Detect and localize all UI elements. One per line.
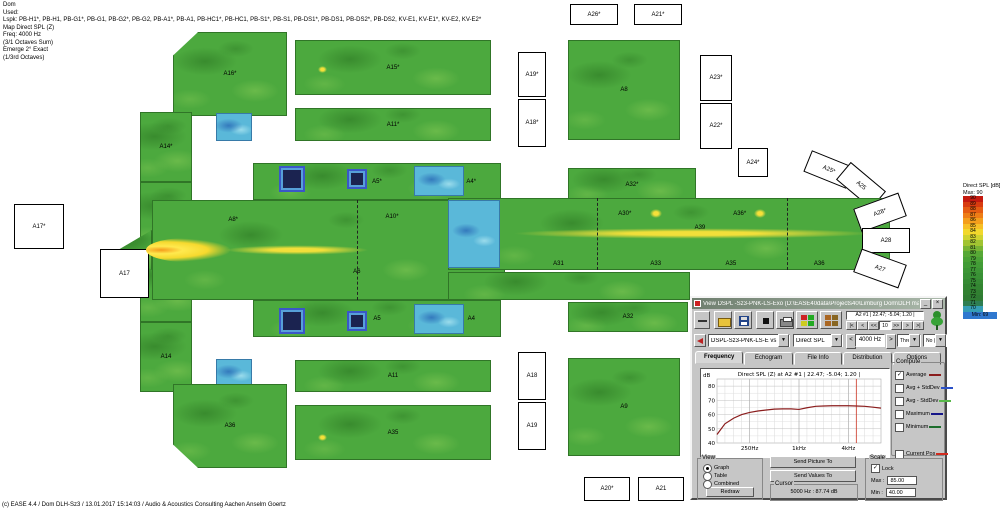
nav-button[interactable]: > xyxy=(902,321,913,330)
area-label: A22* xyxy=(709,123,722,129)
audience-area-zone[interactable] xyxy=(347,169,367,189)
window-titlebar[interactable]: View DSPL -Sz3-PNK-LS-Exo (D:\EASE40data… xyxy=(692,298,945,309)
redraw-button[interactable]: Redraw xyxy=(706,487,754,497)
map-info-line: (3/1 Octaves Sum) xyxy=(3,40,481,48)
audience-area-outline[interactable]: A22* xyxy=(700,103,732,149)
area-label: A19* xyxy=(525,72,538,78)
area-label: A5 xyxy=(373,316,380,322)
probe-position-field[interactable]: A2 #1 | 22.47; -5.04; 1.20 | xyxy=(846,311,924,320)
audience-area-zone[interactable]: A8 xyxy=(568,40,680,140)
printer-icon xyxy=(780,319,793,327)
series-color-swatch xyxy=(941,387,953,389)
speaker-button[interactable] xyxy=(694,334,706,347)
max-field[interactable]: 85.00 xyxy=(887,476,917,485)
view-dspl-window: View DSPL -Sz3-PNK-LS-Exo (D:\EASE40data… xyxy=(690,296,947,500)
compute-option-label: Maximum xyxy=(906,411,930,417)
area-label: A26* xyxy=(587,12,600,18)
nav-button[interactable]: < xyxy=(857,321,868,330)
compute-option-label: Current Pos xyxy=(906,451,935,457)
audience-area-outline[interactable]: A21* xyxy=(634,4,682,25)
selector-toolbar: DSPL-Sz3-PNK-LS-E vs DSPL-Sz▼ Direct SPL… xyxy=(692,333,945,350)
loudspeaker-grid-icon xyxy=(801,315,814,326)
area-label: A23* xyxy=(709,75,722,81)
area-label: A25 xyxy=(855,180,867,191)
map-info-line: Dom xyxy=(3,2,481,10)
map-info-header: DomUsed:Lspk: PB-H1*, PB-H1, PB-G1*, PB-… xyxy=(3,2,481,62)
audience-area-outline[interactable]: A19* xyxy=(518,52,546,97)
print-button[interactable] xyxy=(776,311,794,329)
area-label: A36* xyxy=(733,211,746,217)
svg-text:50: 50 xyxy=(708,427,715,433)
nav-button[interactable]: |< xyxy=(846,321,857,330)
stop-icon xyxy=(763,318,769,324)
map-info-line: Freq: 4000 Hz xyxy=(3,32,481,40)
max-label: Max : xyxy=(871,478,884,484)
loudspeaker-set-b-button[interactable] xyxy=(820,311,842,329)
series-color-swatch xyxy=(929,426,941,428)
series-color-swatch xyxy=(931,413,943,415)
area-label: A25* xyxy=(822,164,836,174)
chevron-down-icon[interactable]: ▼ xyxy=(831,334,842,347)
svg-text:dB: dB xyxy=(703,373,710,379)
spl-hotspot xyxy=(754,209,766,218)
audience-area-outline[interactable]: A24* xyxy=(738,148,768,177)
send-picture-to-button[interactable]: Send Picture To xyxy=(770,456,856,468)
ease-mapping-screen: DomUsed:Lspk: PB-H1*, PB-H1, PB-G1*, PB-… xyxy=(0,0,1000,511)
save-floppy-icon xyxy=(739,316,749,326)
area-label: A17* xyxy=(32,224,45,230)
audience-area-zone[interactable] xyxy=(279,308,305,334)
audience-area-zone[interactable]: A11* xyxy=(295,108,491,141)
area-label: A21 xyxy=(656,486,667,492)
area-label: A14* xyxy=(159,144,172,150)
spl-hotspot xyxy=(318,66,327,73)
audience-area-zone[interactable]: A32* xyxy=(568,168,696,201)
stop-button[interactable] xyxy=(756,311,774,329)
compute-option-label: Avg - StdDev xyxy=(906,398,938,404)
audience-area-outline[interactable]: A17 xyxy=(100,249,149,298)
freq-next-button[interactable]: > xyxy=(886,334,896,349)
spl-hotspot xyxy=(505,228,880,239)
cursor-group: Cursor 5000 Hz : 87.74 dB xyxy=(770,484,858,501)
area-label: A16* xyxy=(223,71,236,77)
tab-echogram[interactable]: Echogram xyxy=(744,352,792,365)
area-label: A11* xyxy=(387,122,400,128)
compute-option: ✓Average xyxy=(895,371,941,379)
cursor-readout: 5000 Hz : 87.74 dB xyxy=(771,489,857,495)
audience-area-outline[interactable]: A17* xyxy=(14,204,64,249)
loudspeaker-set-a-button[interactable] xyxy=(796,311,818,329)
checkbox[interactable] xyxy=(895,397,904,406)
bandwidth-combo[interactable]: Three Octave▼ xyxy=(897,334,921,347)
map-info-line: Lspk: PB-H1*, PB-H1, PB-G1*, PB-G1, PB-G… xyxy=(3,17,481,25)
weighting-combo-value: No (Z) Weight xyxy=(924,338,935,344)
spl-color-legend: Direct SPL [dB] Max: 90 9089888786858483… xyxy=(963,183,1000,319)
checkbox[interactable] xyxy=(895,384,904,393)
section-divider-line xyxy=(597,198,598,270)
probe-nav-buttons: |<<<<10>>>>| xyxy=(846,321,924,330)
area-label: A32 xyxy=(623,314,634,320)
audience-area-zone[interactable]: A14 xyxy=(140,322,192,392)
nav-button[interactable]: >> xyxy=(891,321,902,330)
svg-text:80: 80 xyxy=(708,384,715,390)
compute-option: Avg + StdDev xyxy=(895,384,941,392)
area-label: A17 xyxy=(119,271,130,277)
hide-icon xyxy=(698,320,707,322)
radio-combined[interactable] xyxy=(703,480,712,489)
svg-text:40: 40 xyxy=(708,441,715,447)
audience-area-outline[interactable]: A21 xyxy=(638,477,684,501)
frequency-response-chart[interactable]: 8070605040250Hz1kHz4kHzdBDirect SPL (Z) … xyxy=(701,369,887,455)
area-label: A36 xyxy=(225,423,236,429)
chevron-down-icon[interactable]: ▼ xyxy=(778,334,789,347)
spl-hotspot xyxy=(318,434,327,441)
audience-area-zone[interactable] xyxy=(347,311,367,331)
compute-option-label: Average xyxy=(906,372,928,378)
area-label: A32* xyxy=(625,182,638,188)
legend-title: Direct SPL [dB] xyxy=(963,183,1000,190)
audience-area-outline[interactable]: A27 xyxy=(853,249,907,289)
view-option: Combined xyxy=(703,480,739,488)
close-button[interactable]: × xyxy=(932,299,943,309)
svg-text:70: 70 xyxy=(708,398,715,404)
open-folder-icon xyxy=(718,318,731,327)
spl-hotspot xyxy=(222,245,372,255)
series-color-swatch xyxy=(929,374,941,376)
area-label: A33 xyxy=(650,261,661,267)
area-label: A19 xyxy=(527,423,538,429)
audience-area-zone[interactable]: A32 xyxy=(568,302,688,332)
section-divider-line xyxy=(787,198,788,270)
svg-text:Direct SPL (Z) at A2 #1 | 22.: Direct SPL (Z) at A2 #1 | 22.47; -5.04; … xyxy=(738,372,861,378)
scale-group-title: Scale xyxy=(869,455,886,461)
compute-group: Compute ✓AverageAvg + StdDevAvg - StdDev… xyxy=(891,362,945,456)
minimize-button[interactable]: _ xyxy=(920,299,931,309)
audience-area-zone[interactable]: A11 xyxy=(295,360,491,392)
main-toolbar: A2 #1 | 22.47; -5.04; 1.20 | |<<<<10>>>>… xyxy=(692,309,945,333)
chevron-down-icon[interactable]: ▼ xyxy=(909,334,920,347)
audience-area-zone[interactable] xyxy=(414,166,464,196)
file-combo[interactable]: DSPL-Sz3-PNK-LS-E vs DSPL-Sz▼ xyxy=(708,334,790,347)
area-label: A21* xyxy=(651,12,664,18)
nav-count-field[interactable]: 10 xyxy=(879,321,890,330)
legend-scale-bar: 9089888786858483828180797877767574737271… xyxy=(963,196,1000,319)
chevron-down-icon[interactable]: ▼ xyxy=(935,334,946,347)
audience-area-zone[interactable] xyxy=(279,166,305,192)
audience-area-zone[interactable] xyxy=(448,200,500,268)
checkbox[interactable]: ✓ xyxy=(895,371,904,380)
map-info-line: (1/3rd Octaves) xyxy=(3,55,481,63)
area-label: A28* xyxy=(873,207,887,217)
map-info-line: Emerge 2° Exact xyxy=(3,47,481,55)
window-icon xyxy=(694,300,701,307)
file-combo-value: DSPL-Sz3-PNK-LS-E vs DSPL-Sz xyxy=(709,338,778,344)
quantity-combo[interactable]: Direct SPL▼ xyxy=(793,334,843,347)
area-label: A8 xyxy=(620,87,627,93)
audience-area-zone[interactable] xyxy=(414,304,464,334)
series-color-swatch xyxy=(936,453,948,455)
audience-area-zone[interactable]: A35 xyxy=(295,405,491,460)
area-label: A10* xyxy=(386,214,399,220)
area-label: A9 xyxy=(620,404,627,410)
map-info-line: Used: xyxy=(3,10,481,18)
tab-frequency[interactable]: Frequency xyxy=(695,351,743,364)
area-label: A15* xyxy=(386,65,399,71)
loudspeaker-grid-icon xyxy=(825,315,838,326)
compute-option: Current Pos xyxy=(895,450,941,458)
audience-area-outline[interactable]: A23* xyxy=(700,55,732,101)
checkbox[interactable] xyxy=(895,423,904,432)
nav-button[interactable]: >| xyxy=(913,321,924,330)
view-group: View Redraw GraphTableCombined xyxy=(697,458,763,500)
speaker-icon xyxy=(697,338,703,344)
lock-checkbox[interactable]: ✓ xyxy=(871,464,880,473)
cursor-group-title: Cursor xyxy=(774,481,794,487)
hide-button[interactable] xyxy=(694,311,710,329)
series-color-swatch xyxy=(939,400,951,402)
bandwidth-combo-value: Three Octave xyxy=(898,338,909,344)
spl-hotspot xyxy=(146,238,230,262)
checkbox[interactable] xyxy=(895,410,904,419)
audience-area-zone[interactable] xyxy=(216,359,252,387)
audience-area-zone[interactable]: A9 xyxy=(568,358,680,456)
scale-group: Scale ✓ Lock Max : 85.00 Min : 40.00 xyxy=(865,458,943,501)
lock-label: Lock xyxy=(882,466,894,472)
compute-option: Maximum xyxy=(895,410,941,418)
tab-file-info[interactable]: File Info xyxy=(794,352,842,365)
view-option: Graph xyxy=(703,464,729,472)
area-label: A27 xyxy=(874,264,886,273)
area-label: A4 xyxy=(468,316,475,322)
svg-text:1kHz: 1kHz xyxy=(792,446,806,452)
area-label: A11 xyxy=(388,373,398,379)
view-option-label: Graph xyxy=(714,465,729,471)
tab-distribution[interactable]: Distribution xyxy=(843,352,891,365)
area-label: A8* xyxy=(228,217,238,223)
spl-hotspot xyxy=(650,209,662,218)
view-option-label: Table xyxy=(714,473,727,479)
area-label: A20* xyxy=(600,486,613,492)
audience-area-outline[interactable]: A18 xyxy=(518,352,546,400)
view-option: Table xyxy=(703,472,727,480)
compute-group-title: Compute xyxy=(895,359,921,365)
audience-area-zone[interactable] xyxy=(216,113,252,141)
area-label: A4* xyxy=(466,179,476,185)
compute-option-label: Minimum xyxy=(906,424,928,430)
area-label: A35 xyxy=(726,261,737,267)
view-option-label: Combined xyxy=(714,481,739,487)
audience-area-outline[interactable]: A18* xyxy=(518,99,546,147)
area-label: A24* xyxy=(746,160,759,166)
area-label: A14 xyxy=(161,354,172,360)
audience-area-outline[interactable]: A26* xyxy=(570,4,618,25)
nav-button[interactable]: << xyxy=(868,321,879,330)
legend-max-label: Max: 90 xyxy=(963,190,1000,197)
view-group-title: View xyxy=(701,455,716,461)
compute-option: Avg - StdDev xyxy=(895,397,941,405)
area-label: A36 xyxy=(814,261,825,267)
window-title: View DSPL -Sz3-PNK-LS-Exo (D:\EASE40data… xyxy=(703,301,919,307)
audience-area-zone[interactable]: A36 xyxy=(173,384,287,468)
area-label: A5* xyxy=(372,179,382,185)
audience-area-outline[interactable]: A19 xyxy=(518,402,546,450)
area-label: A35 xyxy=(388,430,399,436)
quantity-combo-value: Direct SPL xyxy=(794,338,831,344)
compute-option: Minimum xyxy=(895,423,941,431)
frequency-chart-panel[interactable]: 8070605040250Hz1kHz4kHzdBDirect SPL (Z) … xyxy=(700,368,890,458)
audience-area-outline[interactable]: A20* xyxy=(584,477,630,501)
weighting-combo[interactable]: No (Z) Weight▼ xyxy=(923,334,947,347)
svg-text:60: 60 xyxy=(708,413,715,419)
copyright-footer: (c) EASE 4.4 / Dom DLH-Sz3 / 13.01.2017 … xyxy=(2,502,286,508)
area-label: A28 xyxy=(881,238,892,244)
legend-min-cell: Min: 69 xyxy=(963,312,997,319)
open-button[interactable] xyxy=(714,311,732,329)
area-label: A31 xyxy=(553,261,564,267)
audience-area-zone[interactable]: A14* xyxy=(140,112,192,182)
section-divider-line xyxy=(357,200,358,300)
area-label: A30* xyxy=(618,211,631,217)
min-label: Min : xyxy=(871,490,883,496)
min-field[interactable]: 40.00 xyxy=(886,488,916,497)
area-label: A18* xyxy=(525,120,538,126)
ease-mascot-icon xyxy=(930,311,944,330)
compute-option-label: Avg + StdDev xyxy=(906,385,940,391)
svg-text:250Hz: 250Hz xyxy=(741,446,759,452)
audience-area-zone[interactable] xyxy=(448,272,690,300)
map-info-line: Map Direct SPL (Z) xyxy=(3,25,481,33)
save-button[interactable] xyxy=(734,311,752,329)
area-label: A18 xyxy=(527,373,538,379)
svg-text:4kHz: 4kHz xyxy=(842,446,856,452)
freq-field[interactable]: 4000 Hz xyxy=(855,334,885,347)
